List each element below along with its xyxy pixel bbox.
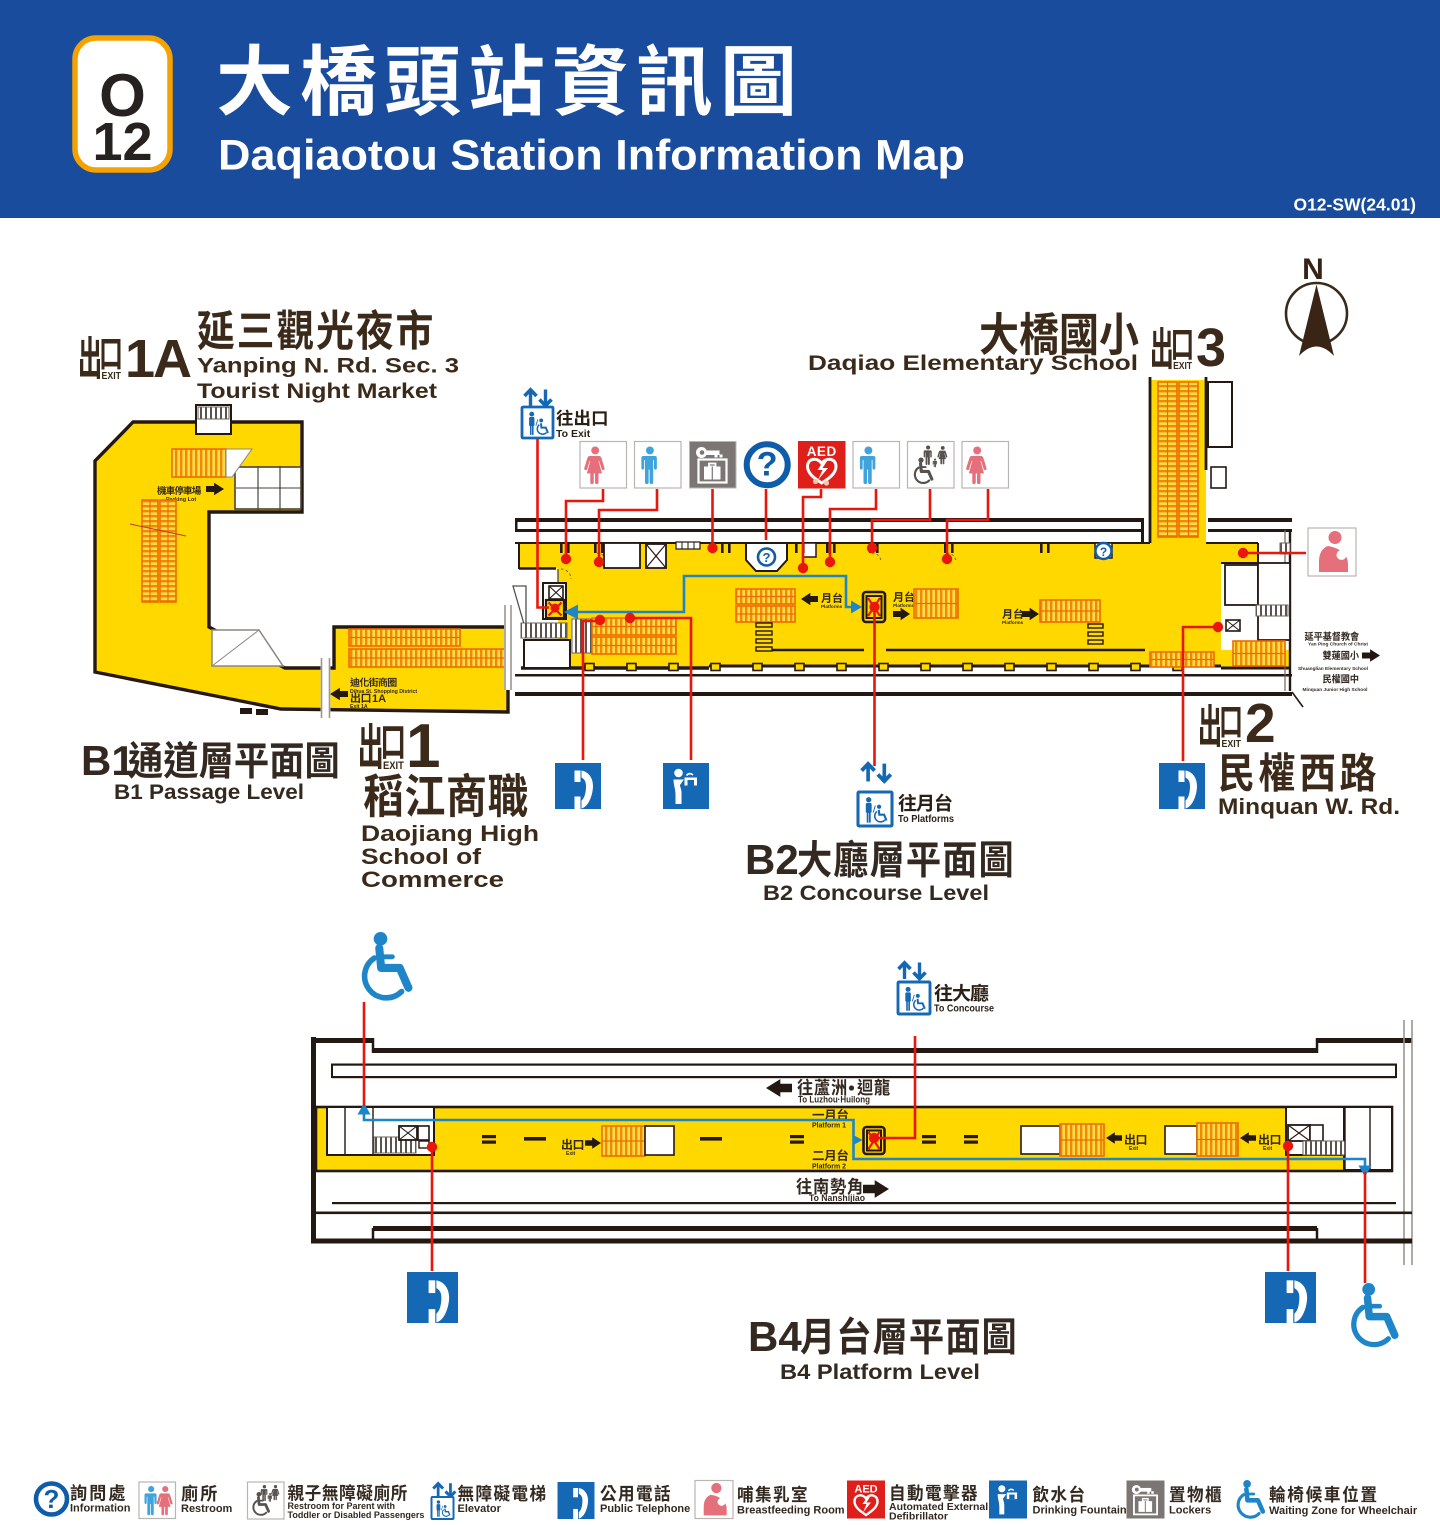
svg-text:Information: Information — [70, 1503, 131, 1515]
svg-text:EXIT: EXIT — [383, 760, 404, 772]
svg-text:EXIT: EXIT — [102, 370, 122, 382]
svg-text:Platforms: Platforms — [1002, 620, 1024, 625]
svg-text:B4: B4 — [748, 1313, 802, 1360]
svg-text:AED: AED — [807, 444, 837, 459]
svg-text:N: N — [1302, 253, 1324, 286]
svg-text:1A: 1A — [372, 693, 386, 705]
svg-text:Exit 1A: Exit 1A — [350, 704, 368, 710]
svg-text:Yan Ping Church of Christ: Yan Ping Church of Christ — [1308, 642, 1369, 647]
svg-text:To Platforms: To Platforms — [898, 814, 954, 825]
svg-text:B1 Passage Level: B1 Passage Level — [114, 781, 304, 804]
svg-text:Minquan W. Rd.: Minquan W. Rd. — [1218, 794, 1400, 819]
svg-text:?: ? — [44, 1484, 60, 1514]
svg-text:?: ? — [757, 446, 778, 484]
svg-text:Daqiao Elementary School: Daqiao Elementary School — [808, 351, 1138, 375]
svg-text:Public Telephone: Public Telephone — [600, 1503, 690, 1515]
svg-text:12: 12 — [92, 112, 152, 172]
svg-text:Restroom: Restroom — [181, 1503, 233, 1515]
svg-text:To Concourse: To Concourse — [934, 1004, 994, 1015]
svg-text:?: ? — [763, 550, 771, 565]
svg-text:Exit: Exit — [1263, 1146, 1273, 1152]
svg-text:Lockers: Lockers — [1169, 1505, 1211, 1517]
svg-text:B4 Platform Level: B4 Platform Level — [780, 1360, 980, 1384]
svg-text:B2 Concourse Level: B2 Concourse Level — [763, 881, 989, 905]
svg-text:Drinking Fountain: Drinking Fountain — [1033, 1505, 1127, 1517]
svg-text:Platform 2: Platform 2 — [812, 1162, 846, 1171]
svg-text:Yanping N. Rd. Sec. 3: Yanping N. Rd. Sec. 3 — [197, 354, 459, 378]
svg-text:B1: B1 — [81, 737, 135, 784]
svg-text:Elevator: Elevator — [458, 1503, 502, 1515]
svg-text:AED: AED — [854, 1484, 877, 1496]
svg-text:Breastfeeding Room: Breastfeeding Room — [737, 1505, 845, 1517]
svg-text:Exit: Exit — [566, 1151, 576, 1157]
svg-text:To Exit: To Exit — [556, 428, 591, 440]
svg-text:Commerce: Commerce — [361, 867, 504, 892]
svg-text:Platform 1: Platform 1 — [812, 1121, 846, 1130]
svg-text:Shuanglian Elementary School: Shuanglian Elementary School — [1298, 666, 1368, 671]
svg-text:EXIT: EXIT — [1222, 738, 1242, 750]
svg-text:To Nanshijiao: To Nanshijiao — [809, 1193, 865, 1204]
svg-text:2: 2 — [1245, 692, 1276, 754]
svg-text:Tourist Night Market: Tourist Night Market — [197, 379, 437, 403]
svg-text:Waiting Zone for Wheelchair: Waiting Zone for Wheelchair — [1269, 1505, 1418, 1517]
svg-text:To Luzhou·Huilong: To Luzhou·Huilong — [798, 1095, 870, 1106]
svg-text:Toddler or Disabled Passengers: Toddler or Disabled Passengers — [288, 1510, 425, 1520]
svg-text:?: ? — [1100, 545, 1107, 559]
svg-text:Platforms: Platforms — [821, 604, 843, 609]
svg-text:Exit: Exit — [1129, 1146, 1139, 1152]
svg-text:O12-SW(24.01): O12-SW(24.01) — [1293, 195, 1416, 215]
svg-text:1A: 1A — [125, 329, 191, 389]
svg-text:1: 1 — [406, 712, 440, 781]
svg-text:Daojiang High: Daojiang High — [361, 821, 539, 846]
svg-text:B2: B2 — [745, 836, 799, 883]
svg-text:Daqiaotou Station Information: Daqiaotou Station Information Map — [218, 132, 965, 180]
svg-text:School of: School of — [361, 844, 482, 869]
svg-text:Minquan Junior High School: Minquan Junior High School — [1303, 687, 1368, 692]
svg-text:EXIT: EXIT — [1173, 361, 1193, 372]
svg-text:Defibrillator: Defibrillator — [889, 1511, 948, 1521]
svg-text:3: 3 — [1196, 318, 1226, 378]
svg-text:Platforms: Platforms — [893, 603, 915, 608]
